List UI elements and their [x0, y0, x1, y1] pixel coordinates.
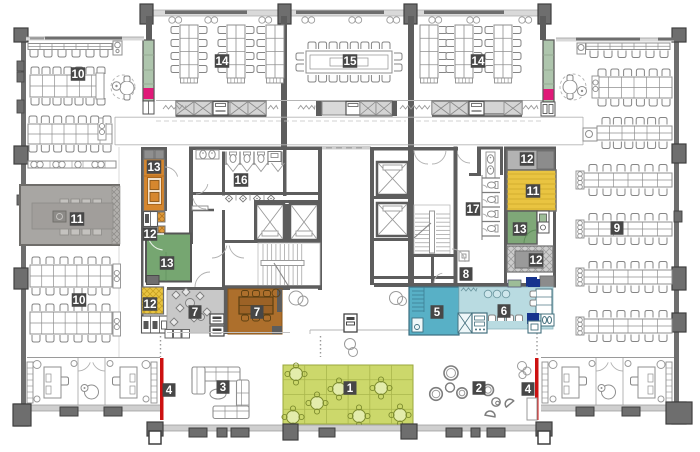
svg-text:7: 7: [192, 307, 198, 319]
svg-text:12: 12: [144, 229, 157, 241]
svg-text:10: 10: [73, 295, 86, 307]
svg-text:13: 13: [161, 258, 174, 270]
svg-text:2: 2: [476, 383, 482, 395]
svg-text:12: 12: [144, 299, 157, 311]
svg-text:13: 13: [148, 162, 161, 174]
svg-text:4: 4: [166, 385, 173, 397]
svg-text:1: 1: [347, 383, 354, 395]
svg-text:14: 14: [472, 56, 486, 68]
svg-text:13: 13: [514, 224, 527, 236]
svg-text:11: 11: [71, 214, 85, 226]
svg-text:12: 12: [521, 154, 534, 166]
svg-text:12: 12: [530, 255, 543, 267]
svg-text:6: 6: [501, 306, 507, 318]
svg-text:5: 5: [434, 307, 441, 319]
svg-text:4: 4: [525, 384, 532, 396]
svg-text:16: 16: [235, 175, 248, 187]
svg-text:10: 10: [72, 69, 85, 81]
svg-text:11: 11: [527, 186, 541, 198]
svg-text:7: 7: [254, 307, 260, 319]
svg-text:3: 3: [220, 382, 226, 394]
svg-text:9: 9: [614, 223, 620, 235]
svg-text:8: 8: [463, 269, 470, 281]
svg-text:17: 17: [467, 204, 480, 216]
svg-text:14: 14: [216, 56, 230, 68]
svg-text:15: 15: [344, 56, 358, 68]
